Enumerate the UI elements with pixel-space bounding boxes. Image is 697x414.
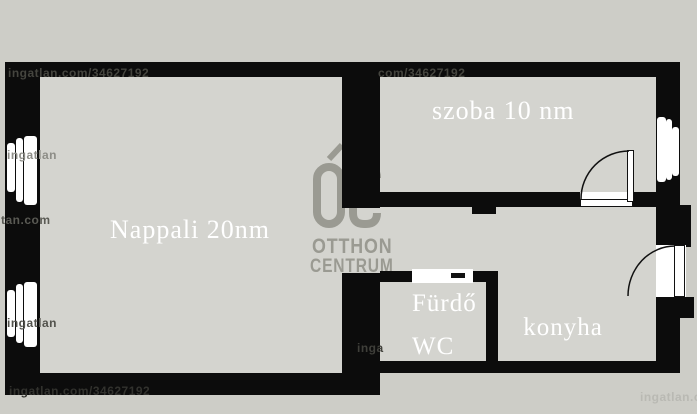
watermark: ingatlan.com/34627192 [9,384,150,398]
window-left-lower-bar2 [16,284,23,343]
watermark: ingatlan.com/34627192 [8,66,149,80]
wall-divider-lower [342,273,380,395]
wall-pier-upper [678,205,691,247]
watermark: ingatlan.com [640,390,697,404]
window-left-lower-bar3 [24,282,37,347]
watermark: com/34627192 [378,66,465,80]
wall-bath-right [486,271,498,361]
watermark: ingatlan [7,316,57,330]
szoba-door-threshold [580,199,633,207]
entrance-door-leaf [674,245,685,297]
watermark: tan.com [1,213,51,227]
room-label-szoba: szoba 10 nm [432,96,567,126]
room-label-wc: WC [412,333,476,361]
wall-bottom-right [378,361,680,373]
wall-bath-top-left [380,271,413,282]
wall-pier-lower [678,297,694,318]
window-right-bar1 [657,117,666,182]
floorplan-canvas: ÓC OTTHON CENTRUM [0,0,697,414]
window-right-bar3 [672,127,679,176]
wall-stub [472,192,496,214]
room-label-nappali: Nappali 20nm [110,215,260,245]
room-label-furdo: Fürdő [412,290,476,318]
wall-szoba-bottom-right [633,192,656,207]
wall-divider-upper [342,77,380,208]
watermark: ingatlan [7,148,57,162]
bathroom-door-dash [451,273,465,278]
wall-right [656,62,680,373]
watermark: inga [357,341,384,355]
szoba-door-leaf [627,150,634,202]
window-left-upper-bar3 [24,136,37,205]
room-label-konyha: konyha [523,314,603,342]
